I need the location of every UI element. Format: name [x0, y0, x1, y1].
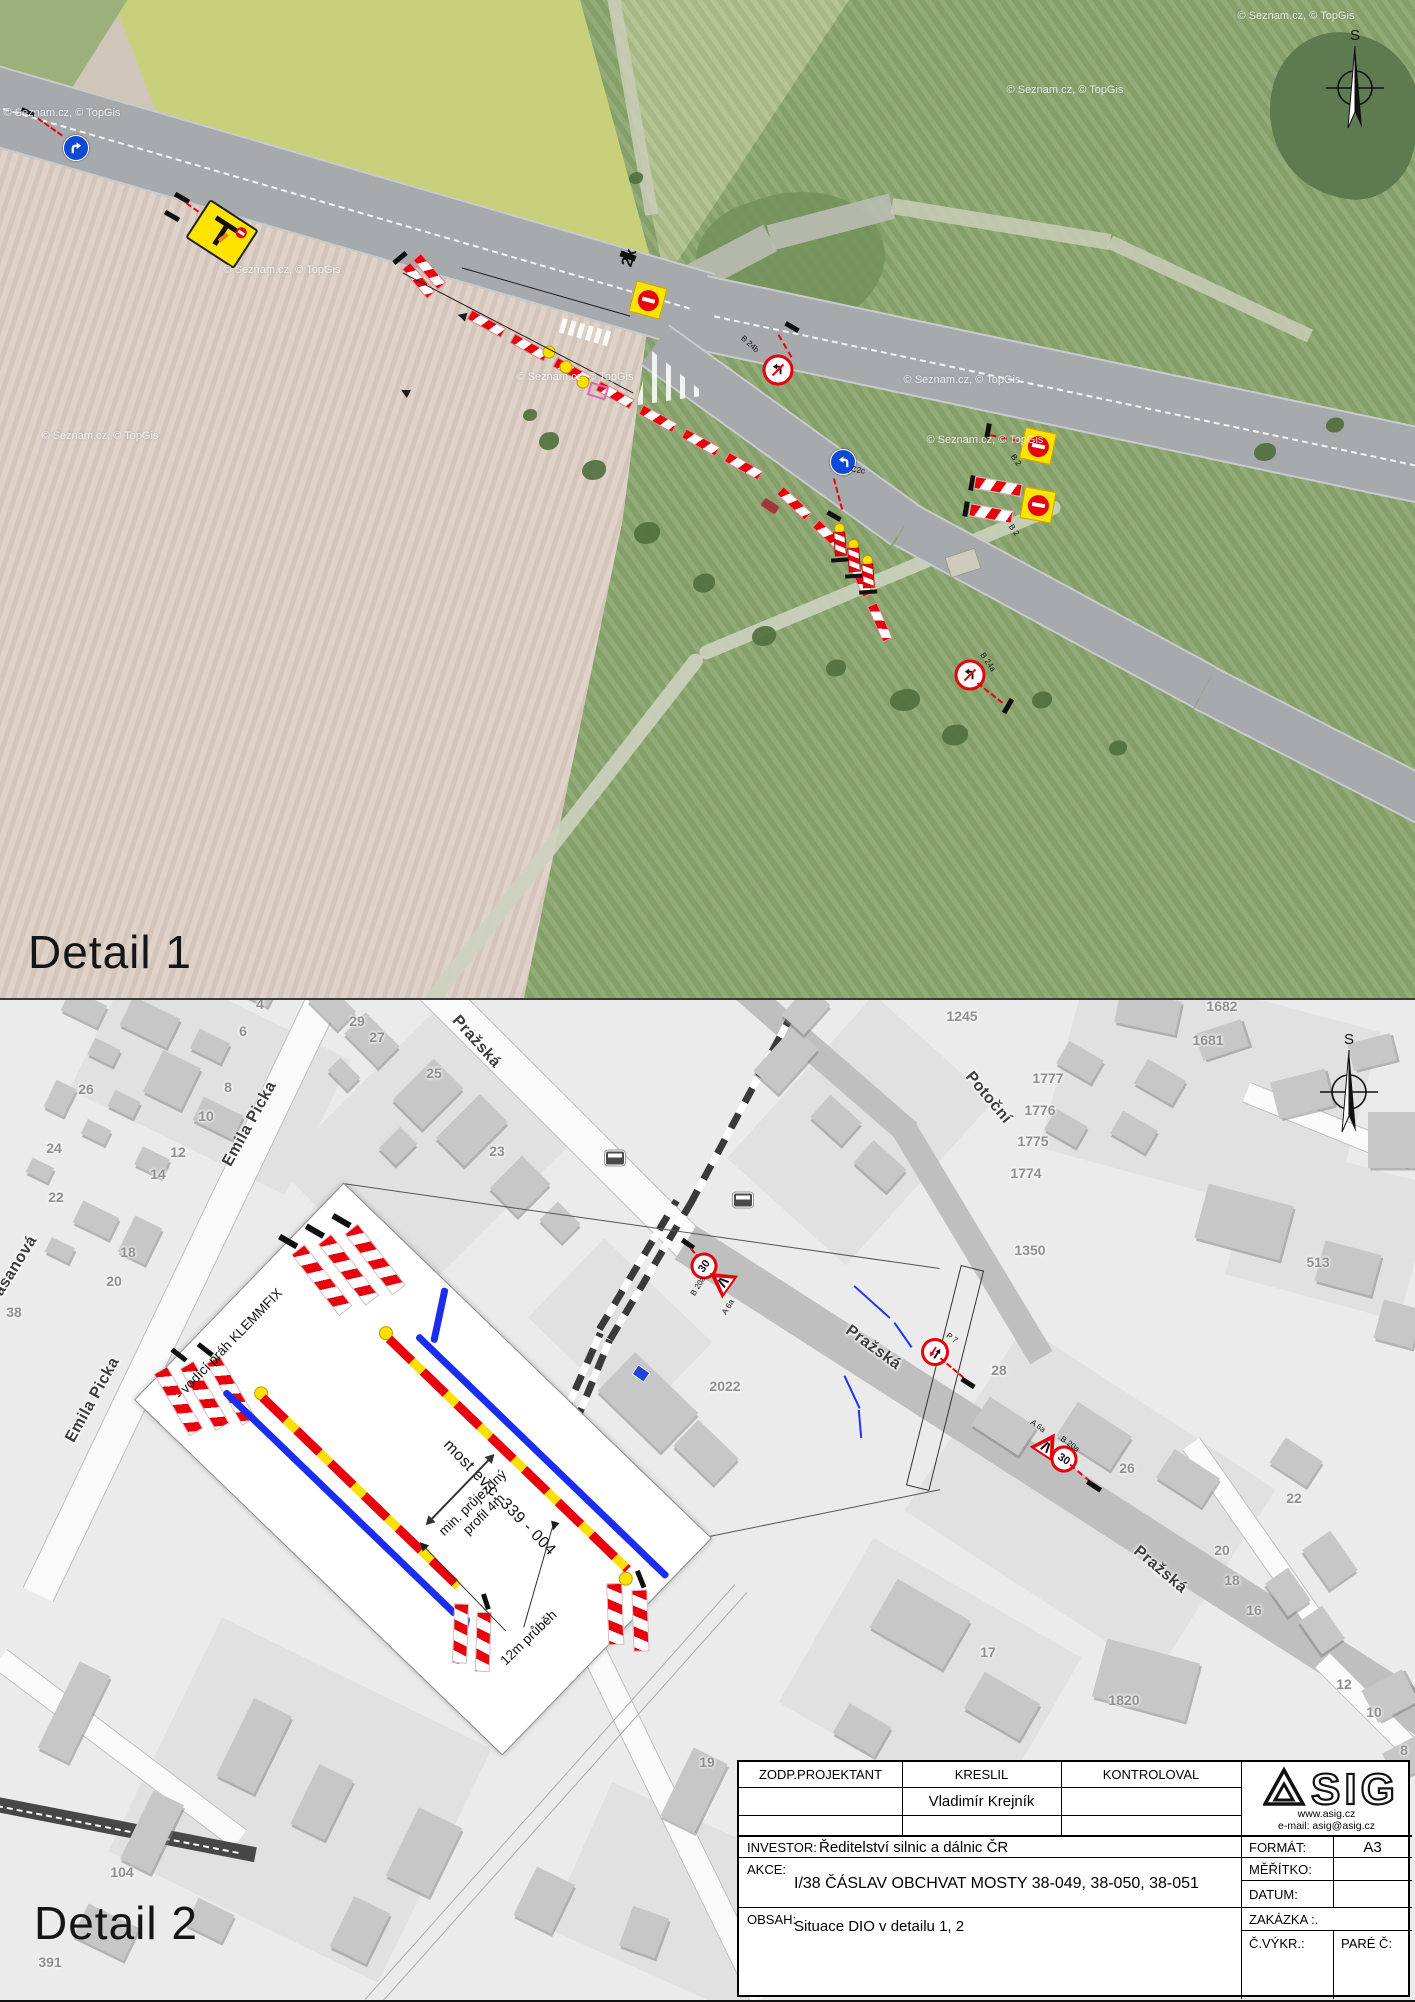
watermark: © Seznam.cz, © TopGis: [4, 107, 121, 119]
house-number: 17: [980, 1644, 996, 1660]
house-number: 1776: [1024, 1102, 1055, 1118]
house-number: 20: [106, 1273, 122, 1289]
house-number: 391: [38, 1954, 61, 1970]
house-number: 1682: [1206, 1000, 1237, 1014]
tb-obsah-value: Situace DIO v detailu 1, 2: [794, 1918, 964, 1935]
asig-web: www.asig.cz: [1241, 1808, 1412, 1820]
tb-pare-label: PARÉ Č:: [1341, 1936, 1392, 1951]
house-number: 14: [150, 1166, 166, 1182]
watermark: © Seznam.cz, © TopGis: [1007, 84, 1124, 96]
house-number: 8: [224, 1079, 232, 1095]
asig-logo: SIG: [1263, 1766, 1405, 1808]
no-entry-sign-yellow: [1019, 486, 1056, 523]
watermark: © Seznam.cz, © TopGis: [224, 264, 341, 276]
tb-cvykr-label: Č.VÝKR.:: [1249, 1936, 1305, 1951]
house-number: 513: [1306, 1254, 1329, 1270]
house-number: 6: [239, 1023, 247, 1039]
svg-text:S: S: [1344, 1031, 1354, 1048]
watermark: © Seznam.cz, © TopGis: [42, 430, 159, 442]
house-number: 24: [46, 1140, 62, 1156]
house-number: 26: [78, 1081, 94, 1097]
tb-akce-value: I/38 ČÁSLAV OBCHVAT MOSTY 38-049, 38-050…: [794, 1875, 1199, 1893]
street-label: asanová: [0, 1233, 42, 1300]
tb-kreslil-name: Vladimír Krejník: [902, 1793, 1061, 1810]
compass-rose: S: [1312, 24, 1398, 142]
house-number: 18: [120, 1244, 136, 1260]
barrier-panel: [860, 558, 874, 593]
tb-akce-label: AKCE:: [747, 1862, 786, 1877]
inset-barrier-cluster: [418, 1601, 493, 1686]
house-number: 26: [1119, 1460, 1135, 1476]
house-number: 28: [991, 1362, 1007, 1378]
detail-1-title: Detail 1: [28, 925, 192, 979]
house-number: 22: [48, 1189, 64, 1205]
barrier-panel: [846, 542, 860, 577]
barrier-panel: [832, 526, 846, 561]
title-block: ZODP.PROJEKTANT KRESLIL KONTROLOVAL Vlad…: [737, 1760, 1410, 1997]
house-number: 1245: [946, 1008, 977, 1024]
bus-stop-icon: [733, 1193, 753, 1208]
stream-line: [853, 1285, 890, 1319]
svg-text:SIG: SIG: [1311, 1766, 1399, 1808]
inset-barrier-cluster: [583, 1579, 654, 1671]
house-number: 16: [1246, 1602, 1262, 1618]
asig-email: e-mail: asig@asig.cz: [1241, 1820, 1412, 1832]
house-number: 25: [426, 1065, 442, 1081]
tb-kreslil: KRESLIL: [902, 1767, 1061, 1782]
compass-rose: S: [1306, 1028, 1392, 1146]
house-number: 22: [1286, 1490, 1302, 1506]
inset-blue-line-lower: [222, 1389, 458, 1618]
inset-blue-curve: [430, 1287, 448, 1343]
svg-text:S: S: [1350, 27, 1360, 44]
inset-length-label: 12m průběh: [497, 1607, 559, 1668]
tb-obsah-label: OBSAH:: [747, 1912, 796, 1927]
house-number: 2022: [709, 1378, 740, 1394]
tb-investor-value: Ředitelství silnic a dálnic ČR: [819, 1839, 1008, 1856]
house-number: 10: [1366, 1704, 1382, 1720]
house-number: 18: [1224, 1572, 1240, 1588]
tb-meritko-label: MĚŘÍTKO:: [1249, 1862, 1312, 1877]
watermark: © Seznam.cz, © TopGis: [904, 374, 1021, 386]
inset-klemmfix-lower: [260, 1394, 462, 1589]
tb-datum-label: DATUM:: [1249, 1887, 1298, 1902]
house-number: 12: [1336, 1676, 1352, 1692]
house-number: 1775: [1017, 1133, 1048, 1149]
watermark: © Seznam.cz, © TopGis: [517, 371, 634, 383]
house-number: 10: [198, 1108, 214, 1124]
panel-divider: [0, 998, 1415, 1000]
house-number: 20: [1214, 1542, 1230, 1558]
bus-stop-icon: [605, 1151, 625, 1166]
house-number: 1774: [1010, 1165, 1041, 1181]
house-number: 1777: [1032, 1070, 1063, 1086]
stream-line: [843, 1375, 860, 1408]
tb-format-label: FORMÁT:: [1249, 1840, 1306, 1855]
house-number: 23: [489, 1143, 505, 1159]
no-left-turn-sign: [763, 355, 794, 386]
turn-right-sign: [63, 135, 89, 161]
detail-1-panel: Detail 1 S © Seznam.cz, © TopGis© Seznam…: [0, 0, 1415, 1000]
house-number: 4: [256, 1000, 264, 1012]
tb-kontroloval: KONTROLOVAL: [1061, 1767, 1241, 1782]
watermark: © Seznam.cz, © TopGis: [927, 434, 1044, 446]
house-number: 1820: [1108, 1692, 1139, 1708]
tb-investor-label: INVESTOR:: [747, 1840, 817, 1855]
stream-line: [858, 1410, 862, 1438]
house-number: 104: [110, 1864, 133, 1880]
tb-format-value: A3: [1333, 1839, 1412, 1856]
inset-leader-line: [710, 1489, 940, 1537]
watermark: © Seznam.cz, © TopGis: [1238, 10, 1355, 22]
detail-2-title: Detail 2: [34, 1896, 198, 1950]
house-number: 8: [1400, 1742, 1408, 1758]
drawing-sheet: Detail 1 S © Seznam.cz, © TopGis© Seznam…: [0, 0, 1415, 2002]
house-number: 19: [699, 1754, 715, 1770]
house-number: 38: [6, 1304, 22, 1320]
house-number: 27: [369, 1029, 385, 1045]
stream-line: [894, 1322, 913, 1348]
tb-zakazka-label: ZAKÁZKA :.: [1249, 1912, 1318, 1927]
house-number: 12: [170, 1144, 186, 1160]
detail-2-panel: 30 30: [0, 1000, 1415, 2000]
sign-code-label: A 6a: [720, 1298, 736, 1316]
sign-post: [960, 1377, 975, 1389]
house-number: 1350: [1014, 1242, 1045, 1258]
tb-zodp-projektant: ZODP.PROJEKTANT: [739, 1767, 902, 1782]
no-entry-sign-yellow: [1019, 427, 1057, 465]
house-number: 29: [349, 1013, 365, 1029]
house-number: 1681: [1192, 1032, 1223, 1048]
